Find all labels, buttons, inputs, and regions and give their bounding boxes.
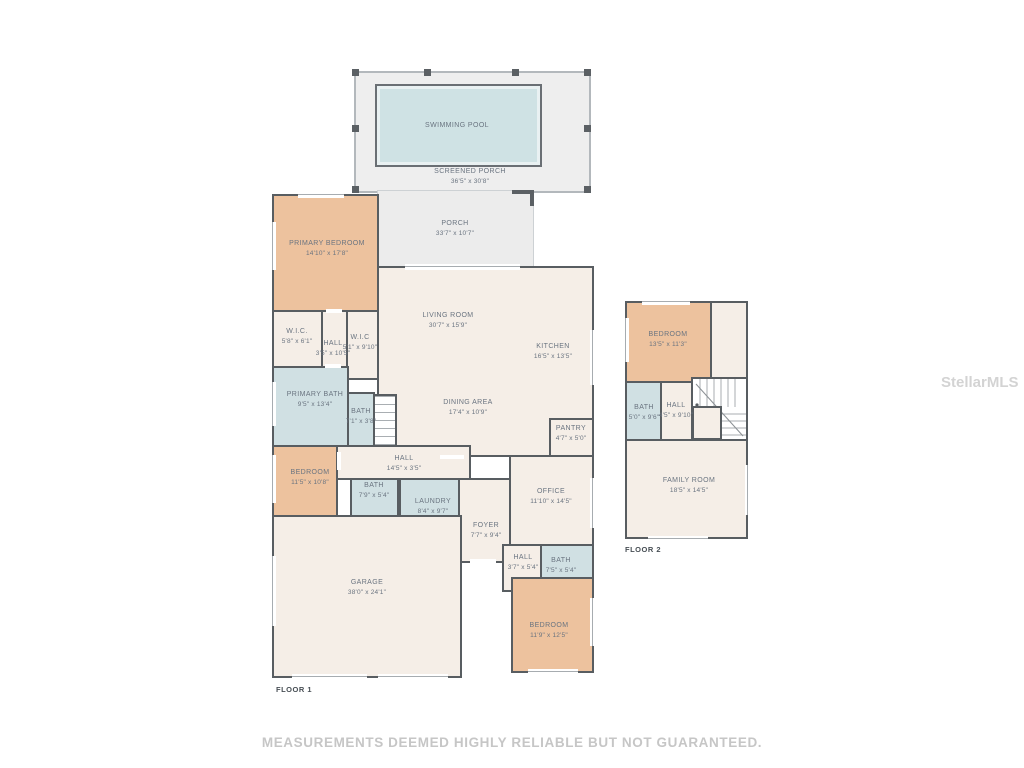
label-primary-bath: PRIMARY BATH 9'5" x 13'4" (287, 390, 344, 410)
door-opening (326, 309, 342, 313)
label-floor2-hall: HALL 4'5" x 9'10" (659, 401, 693, 421)
staircase-floor2 (691, 377, 748, 441)
window (590, 330, 596, 385)
porch-post (584, 186, 591, 193)
window (270, 455, 276, 503)
porch-post (424, 69, 431, 76)
label-bedroom-2: BEDROOM 11'5" x 10'8" (291, 468, 330, 488)
label-living-room: LIVING ROOM 30'7" x 15'9" (422, 311, 473, 331)
label-porch: PORCH 33'7" x 10'7" (436, 219, 474, 239)
label-floor2-bedroom: BEDROOM 13'5" x 11'3" (649, 330, 688, 350)
porch-post (352, 69, 359, 76)
label-hall-3: HALL 3'7" x 5'4" (508, 553, 539, 573)
window (590, 478, 596, 528)
label-kitchen: KITCHEN 16'5" x 13'5" (534, 342, 572, 362)
label-wic-2: W.I.C 5'1" x 9'10" (343, 333, 377, 353)
label-foyer: FOYER 7'7" x 9'4" (471, 521, 502, 541)
door-opening (337, 452, 341, 470)
window (270, 382, 276, 426)
label-primary-bedroom: PRIMARY BEDROOM 14'10" x 17'8" (289, 239, 365, 259)
label-bath-1: BATH 7'1" x 3'8" (346, 407, 377, 427)
label-office: OFFICE 11'10" x 14'5" (530, 487, 572, 507)
porch-corner-wall (512, 190, 534, 206)
disclaimer-text: MEASUREMENTS DEEMED HIGHLY RELIABLE BUT … (0, 735, 1024, 750)
label-laundry: LAUNDRY 8'4" x 9'7" (415, 497, 451, 517)
window (590, 598, 596, 646)
label-hall-2: HALL 14'5" x 3'5" (387, 454, 421, 474)
door-opening (440, 455, 464, 459)
label-floor2-bath: BATH 5'0" x 9'6" (629, 403, 660, 423)
label-wic-1: W.I.C. 5'8" x 6'1" (282, 327, 313, 347)
window (642, 299, 690, 305)
porch-post (512, 69, 519, 76)
label-swimming-pool: SWIMMING POOL (425, 121, 489, 131)
garage-door (378, 674, 448, 680)
porch-post (352, 125, 359, 132)
floor1-caption: FLOOR 1 (276, 685, 312, 694)
window (648, 536, 708, 542)
label-garage: GARAGE 38'0" x 24'1" (348, 578, 386, 598)
label-screened-porch: SCREENED PORCH 36'5" x 30'8" (434, 167, 506, 187)
label-dining-area: DINING AREA 17'4" x 10'9" (443, 398, 493, 418)
window (745, 465, 751, 515)
garage-door (292, 674, 367, 680)
window (270, 556, 276, 626)
sliding-door (405, 264, 520, 270)
porch-post (584, 125, 591, 132)
window (298, 192, 344, 198)
window (623, 318, 629, 362)
porch-post (352, 186, 359, 193)
floor2-caption: FLOOR 2 (625, 545, 661, 554)
porch-post (584, 69, 591, 76)
door-opening (325, 364, 341, 368)
front-door-opening (470, 559, 496, 564)
label-bath-3: BATH 7'5" x 5'4" (546, 556, 577, 576)
window (528, 669, 578, 675)
label-bedroom-3: BEDROOM 11'9" x 12'5" (530, 621, 569, 641)
window (270, 222, 276, 270)
label-bath-2: BATH 7'9" x 5'4" (359, 481, 390, 501)
label-floor2-family-room: FAMILY ROOM 18'5" x 14'5" (663, 476, 715, 496)
floor-plan-canvas: SWIMMING POOL SCREENED PORCH 36'5" x 30'… (0, 0, 1024, 768)
label-pantry: PANTRY 4'7" x 5'0" (556, 424, 587, 444)
stairs-treads-icon (693, 379, 746, 439)
stellar-mls-watermark: StellarMLS (941, 374, 1019, 391)
